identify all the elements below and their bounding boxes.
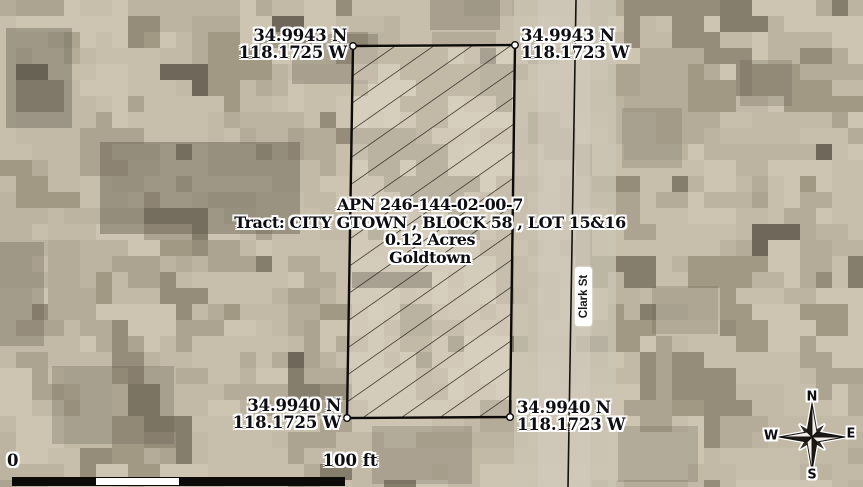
street-name-label: Clark St: [575, 267, 592, 326]
longitude: 118.1725 W: [233, 414, 341, 431]
apn-line: APN 246-144-02-00-7: [234, 196, 626, 214]
longitude: 118.1725 W: [239, 44, 347, 61]
scale-segment: [13, 478, 96, 485]
acres-line: 0.12 Acres: [234, 231, 626, 249]
compass-rose: N E S W: [758, 383, 863, 487]
parcel-map: 34.9943 N 118.1725 W 34.9943 N 118.1723 …: [0, 0, 863, 487]
scale-segment: [96, 478, 179, 485]
latitude: 34.9943 N: [521, 27, 629, 44]
city-line: Goldtown: [234, 249, 626, 267]
coord-label-bottom-left: 34.9940 N 118.1725 W: [233, 397, 341, 431]
coord-label-top-right: 34.9943 N 118.1723 W: [521, 27, 629, 61]
latitude: 34.9940 N: [517, 399, 625, 416]
latitude: 34.9940 N: [233, 397, 341, 414]
corner-marker-top-right: [512, 42, 519, 49]
scale-segment: [179, 478, 345, 485]
compass-north-label: N: [807, 390, 818, 405]
scale-bar: [12, 477, 345, 486]
longitude: 118.1723 W: [517, 416, 625, 433]
corner-marker-top-left: [350, 43, 357, 50]
coord-label-bottom-right: 34.9940 N 118.1723 W: [517, 399, 625, 433]
coord-label-top-left: 34.9943 N 118.1725 W: [239, 27, 347, 61]
corner-marker-bottom-left: [344, 415, 351, 422]
latitude: 34.9943 N: [239, 27, 347, 44]
parcel-info-block: APN 246-144-02-00-7 Tract: CITY GTOWN , …: [234, 196, 626, 266]
scale-start-label: 0: [7, 451, 18, 470]
compass-south-label: S: [807, 468, 816, 483]
compass-east-label: E: [847, 427, 856, 442]
scale-end-label: 100 ft: [323, 451, 378, 470]
corner-marker-bottom-right: [507, 414, 514, 421]
compass-west-label: W: [764, 429, 778, 444]
tract-line: Tract: CITY GTOWN , BLOCK 58 , LOT 15&16: [234, 214, 626, 232]
longitude: 118.1723 W: [521, 44, 629, 61]
